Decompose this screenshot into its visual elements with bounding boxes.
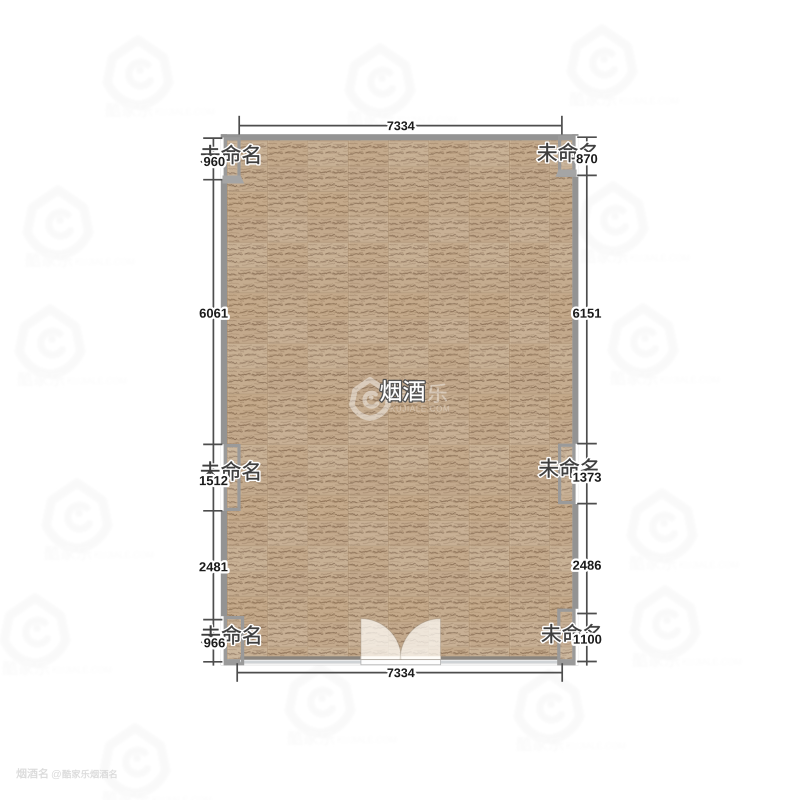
svg-text:KUJIALE.COM: KUJIALE.COM — [67, 376, 127, 386]
svg-text:KUJIALE.COM: KUJIALE.COM — [679, 560, 739, 570]
svg-text:KUJIALE.COM: KUJIALE.COM — [682, 657, 742, 667]
svg-text:KUJIALE.COM: KUJIALE.COM — [619, 96, 679, 106]
svg-text:KUJIALE.COM: KUJIALE.COM — [566, 741, 626, 751]
svg-text:@: @ — [51, 769, 62, 781]
svg-text:KUJIALE.COM: KUJIALE.COM — [94, 550, 154, 560]
svg-text:KUJIALE.COM: KUJIALE.COM — [155, 107, 215, 117]
svg-text:KUJIALE.COM: KUJIALE.COM — [52, 665, 112, 675]
svg-text:KUJIALE.COM: KUJIALE.COM — [660, 375, 720, 385]
svg-text:KUJIALE.COM: KUJIALE.COM — [152, 795, 212, 800]
svg-text:KUJIALE.COM: KUJIALE.COM — [390, 405, 450, 414]
svg-text:KUJIALE.COM: KUJIALE.COM — [75, 257, 135, 267]
svg-text:KUJIALE.COM: KUJIALE.COM — [630, 253, 690, 263]
svg-text:KUJIALE.COM: KUJIALE.COM — [337, 735, 397, 745]
